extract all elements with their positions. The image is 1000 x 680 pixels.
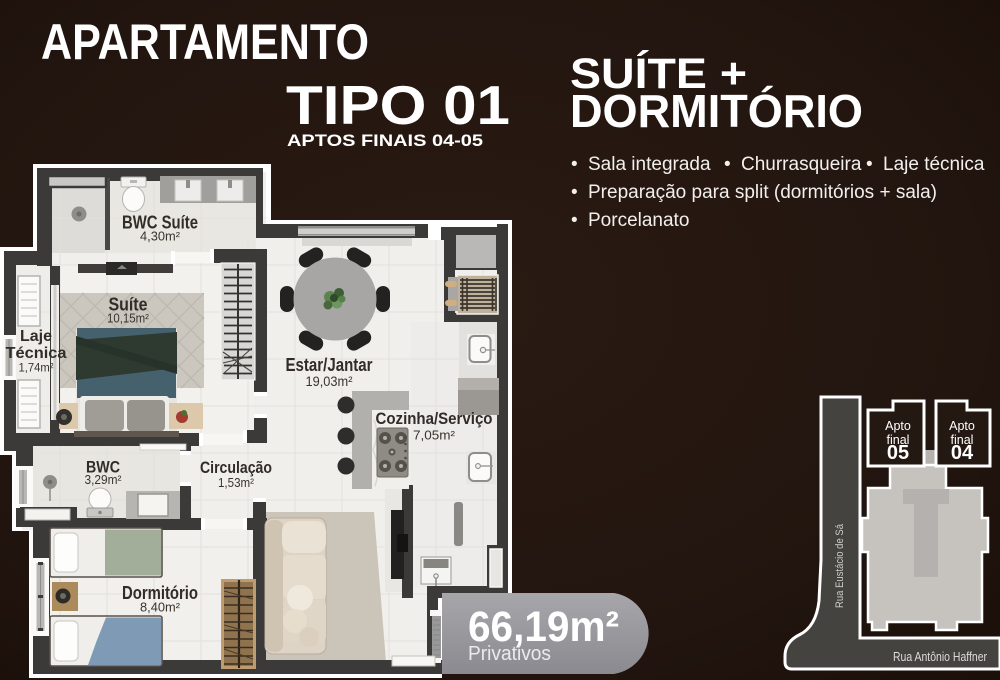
svg-text:8,40m²: 8,40m² <box>140 600 181 615</box>
svg-text:•: • <box>724 154 731 175</box>
svg-text:APTOS FINAIS 04-05: APTOS FINAIS 04-05 <box>287 131 483 150</box>
svg-text:Técnica: Técnica <box>6 345 67 362</box>
svg-text:4,30m²: 4,30m² <box>140 229 181 244</box>
svg-text:Sala integrada: Sala integrada <box>588 154 711 175</box>
svg-text:•: • <box>866 154 873 175</box>
svg-text:APARTAMENTO: APARTAMENTO <box>41 14 369 70</box>
svg-text:1,53m²: 1,53m² <box>218 476 254 490</box>
svg-text:04: 04 <box>951 442 974 464</box>
svg-text:DORMITÓRIO: DORMITÓRIO <box>570 85 863 137</box>
svg-text:•: • <box>571 154 578 175</box>
svg-text:Laje técnica: Laje técnica <box>883 154 985 175</box>
svg-text:Rua Antônio Haffner: Rua Antônio Haffner <box>893 649 988 664</box>
svg-text:19,03m²: 19,03m² <box>306 374 353 389</box>
svg-text:Laje: Laje <box>20 328 52 345</box>
svg-text:Estar/Jantar: Estar/Jantar <box>286 354 373 375</box>
svg-text:3,29m²: 3,29m² <box>85 473 122 487</box>
svg-text:•: • <box>571 210 578 231</box>
svg-text:10,15m²: 10,15m² <box>107 311 150 326</box>
svg-text:05: 05 <box>887 442 909 464</box>
svg-text:Rua Eustácio de Sá: Rua Eustácio de Sá <box>834 523 846 608</box>
svg-text:TIPO 01: TIPO 01 <box>286 74 510 136</box>
svg-text:Cozinha/Serviço: Cozinha/Serviço <box>376 409 493 428</box>
svg-text:Circulação: Circulação <box>200 458 272 477</box>
svg-text:Apto: Apto <box>885 419 911 433</box>
svg-text:Churrasqueira: Churrasqueira <box>741 154 862 175</box>
svg-text:7,05m²: 7,05m² <box>413 428 456 443</box>
svg-text:1,74m²: 1,74m² <box>19 361 54 375</box>
svg-text:Porcelanato: Porcelanato <box>588 210 689 231</box>
svg-text:Apto: Apto <box>949 419 975 433</box>
svg-text:Privativos: Privativos <box>468 643 551 665</box>
svg-text:•: • <box>571 182 578 203</box>
svg-text:Preparação para split (dormitó: Preparação para split (dormitórios + sal… <box>588 182 937 203</box>
